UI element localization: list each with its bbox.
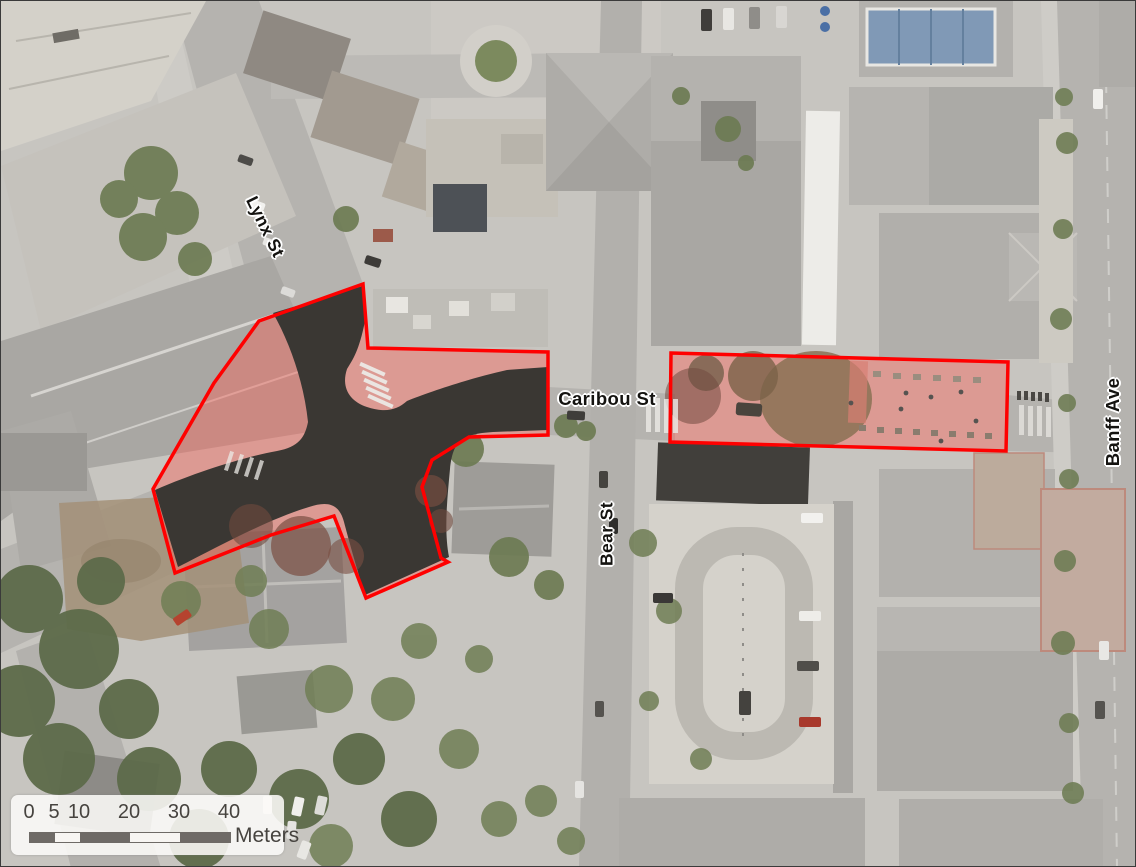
scale-unit-label: Meters <box>235 824 299 848</box>
scale-bar-track <box>29 832 231 843</box>
street-label-bear-st: Bear St <box>597 502 618 566</box>
street-label-caribou-st: Caribou St <box>558 388 656 410</box>
parked-suv <box>736 402 763 417</box>
scale-tick-30: 30 <box>168 801 190 824</box>
scale-tick-40: 40 <box>218 801 240 824</box>
scale-tick-20: 20 <box>118 801 140 824</box>
aerial-map <box>1 1 1136 867</box>
scale-tick-5: 5 <box>48 801 59 824</box>
street-label-banff-ave: Banff Ave <box>1102 378 1124 467</box>
map-canvas: Lynx St Caribou St Bear St Banff Ave 0 5… <box>0 0 1136 867</box>
scale-tick-0: 0 <box>23 801 34 824</box>
dark-roof-building <box>656 442 810 505</box>
scale-tick-10: 10 <box>68 801 90 824</box>
scale-bar: 0 5 10 20 30 40 Meters <box>11 795 284 855</box>
salmon-roof-building <box>1041 489 1125 651</box>
building <box>1 433 87 491</box>
